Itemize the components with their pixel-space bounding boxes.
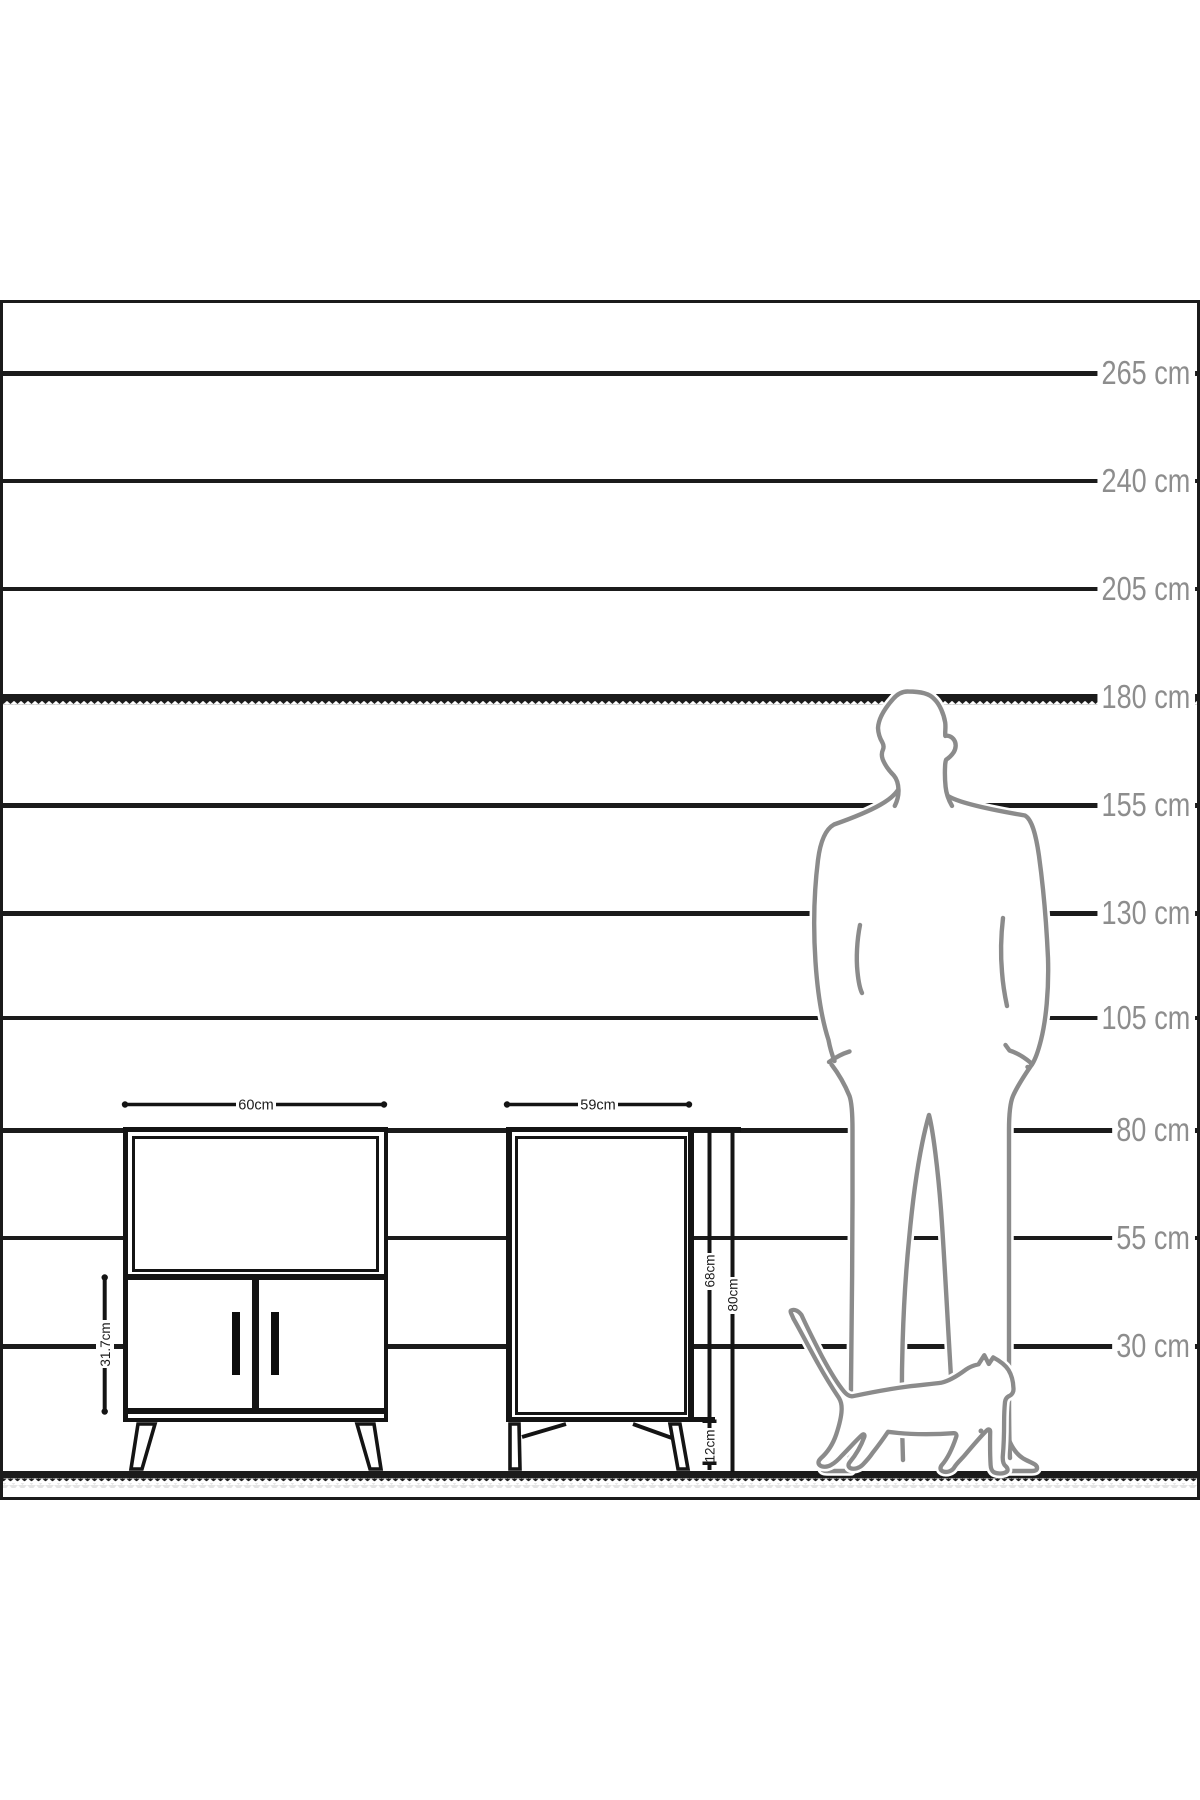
svg-text:80cm: 80cm xyxy=(726,1278,741,1311)
svg-text:60cm: 60cm xyxy=(238,1098,273,1114)
svg-text:68cm: 68cm xyxy=(703,1254,718,1287)
svg-text:59cm: 59cm xyxy=(580,1098,615,1114)
svg-text:31.7cm: 31.7cm xyxy=(98,1322,113,1366)
svg-text:12cm: 12cm xyxy=(703,1429,718,1462)
